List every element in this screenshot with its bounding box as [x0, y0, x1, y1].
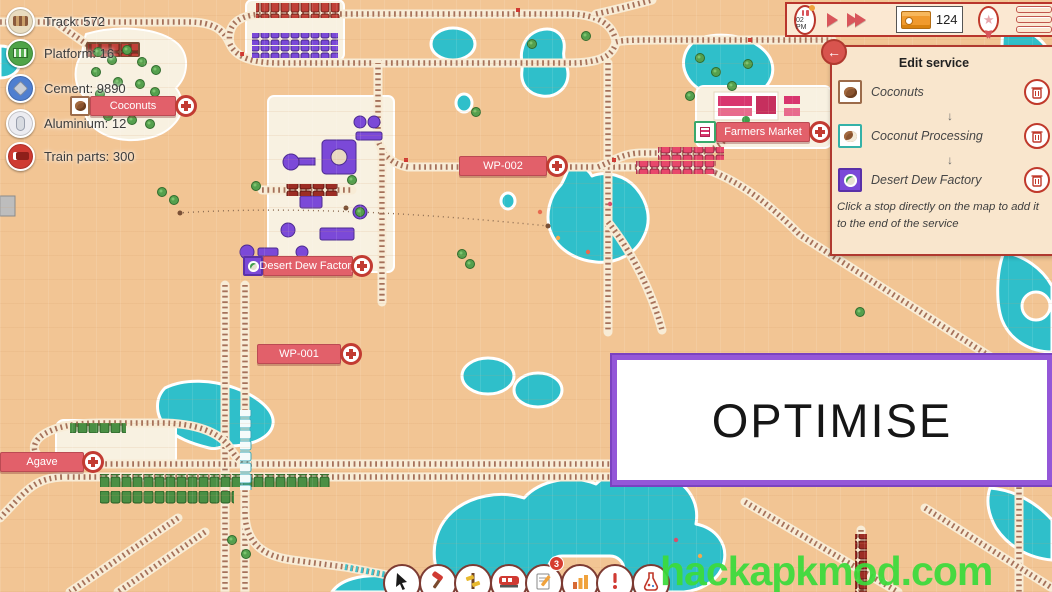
resource-platform: Platform: 16	[6, 38, 114, 68]
achievements-button[interactable]: ★	[978, 6, 999, 34]
medal-icon: ★	[983, 12, 995, 28]
pause-icon	[802, 10, 809, 16]
game-screen: Coconuts Farmers Market WP-002 Desert De…	[0, 0, 1052, 592]
aluminium-count: Aluminium: 12	[44, 116, 126, 131]
service-stop-row[interactable]: Desert Dew Factory	[838, 165, 1050, 195]
wp-001-marker[interactable]	[340, 343, 362, 365]
farmers-market-station-icon	[694, 121, 716, 143]
clock-pause-button[interactable]: 02 PM	[794, 5, 816, 35]
menu-button[interactable]	[1016, 6, 1052, 33]
cargo-counter[interactable]: 124	[896, 6, 963, 33]
cursor-icon	[392, 571, 412, 591]
desert-dew-factory-stop-icon	[838, 168, 862, 192]
map-label-agave[interactable]: Agave	[0, 452, 84, 472]
map-label-farmers-market[interactable]: Farmers Market	[716, 122, 810, 142]
resource-track: Track: 572	[6, 6, 105, 36]
optimise-text: OPTIMISE	[712, 393, 953, 448]
resource-train-parts: Train parts: 300	[6, 141, 135, 171]
resource-aluminium: Aluminium: 12	[6, 108, 126, 138]
rail-piece-icon	[463, 571, 483, 591]
coconuts-station-marker[interactable]	[175, 95, 197, 117]
hammer-icon	[428, 571, 448, 591]
aluminium-icon	[6, 109, 35, 138]
map-label-desert-dew-factory[interactable]: Desert Dew Factory	[263, 256, 353, 276]
service-stop-row[interactable]: Coconuts	[838, 77, 1050, 107]
cement-icon	[6, 74, 35, 103]
play-button[interactable]	[827, 13, 838, 27]
train-parts-icon	[6, 142, 35, 171]
map-label-wp-001[interactable]: WP-001	[257, 344, 341, 364]
edit-service-panel: ← Edit service Coconuts ↓ Coconut Proces…	[830, 45, 1052, 256]
stop-name: Coconut Processing	[871, 129, 983, 143]
clock-hand-dot	[809, 5, 815, 11]
service-stop-row[interactable]: Coconut Processing	[838, 121, 1050, 151]
track-icon	[6, 7, 35, 36]
resource-cement: Cement: 9890	[6, 73, 126, 103]
desert-dew-factory-marker[interactable]	[351, 255, 373, 277]
exclamation-icon	[605, 571, 625, 591]
top-toolbar: 02 PM 124 ★	[785, 2, 1052, 37]
farmers-market-station-marker[interactable]	[809, 121, 831, 143]
notifications-badge: 3	[549, 556, 564, 571]
train-icon	[498, 571, 520, 591]
coconuts-stop-icon	[838, 80, 862, 104]
remove-stop-button[interactable]	[1024, 123, 1050, 149]
stop-name: Desert Dew Factory	[871, 173, 981, 187]
remove-stop-button[interactable]	[1024, 167, 1050, 193]
cement-count: Cement: 9890	[44, 81, 126, 96]
platform-count: Platform: 16	[44, 46, 114, 61]
bar-chart-icon	[570, 571, 590, 591]
train-parts-count: Train parts: 300	[44, 149, 135, 164]
track-count: Track: 572	[44, 14, 105, 29]
panel-hint: Click a stop directly on the map to add …	[837, 199, 1048, 233]
optimise-banner: OPTIMISE	[612, 355, 1052, 485]
remove-stop-button[interactable]	[1024, 79, 1050, 105]
trash-icon	[1031, 129, 1043, 143]
wp-002-marker[interactable]	[546, 155, 568, 177]
fast-forward-button[interactable]	[847, 13, 866, 27]
notepad-pencil-icon	[534, 571, 554, 591]
crate-icon	[901, 11, 931, 29]
stop-name: Coconuts	[871, 85, 924, 99]
trash-icon	[1031, 85, 1043, 99]
coconut-processing-stop-icon	[838, 124, 862, 148]
cargo-count: 124	[931, 12, 962, 27]
flask-icon	[641, 571, 661, 591]
agave-station-marker[interactable]	[82, 451, 104, 473]
menu-icon	[1016, 6, 1052, 13]
platform-icon	[6, 39, 35, 68]
map-label-wp-002[interactable]: WP-002	[459, 156, 547, 176]
trash-icon	[1031, 173, 1043, 187]
game-time: 02 PM	[796, 17, 814, 31]
panel-title: Edit service	[832, 56, 1036, 70]
